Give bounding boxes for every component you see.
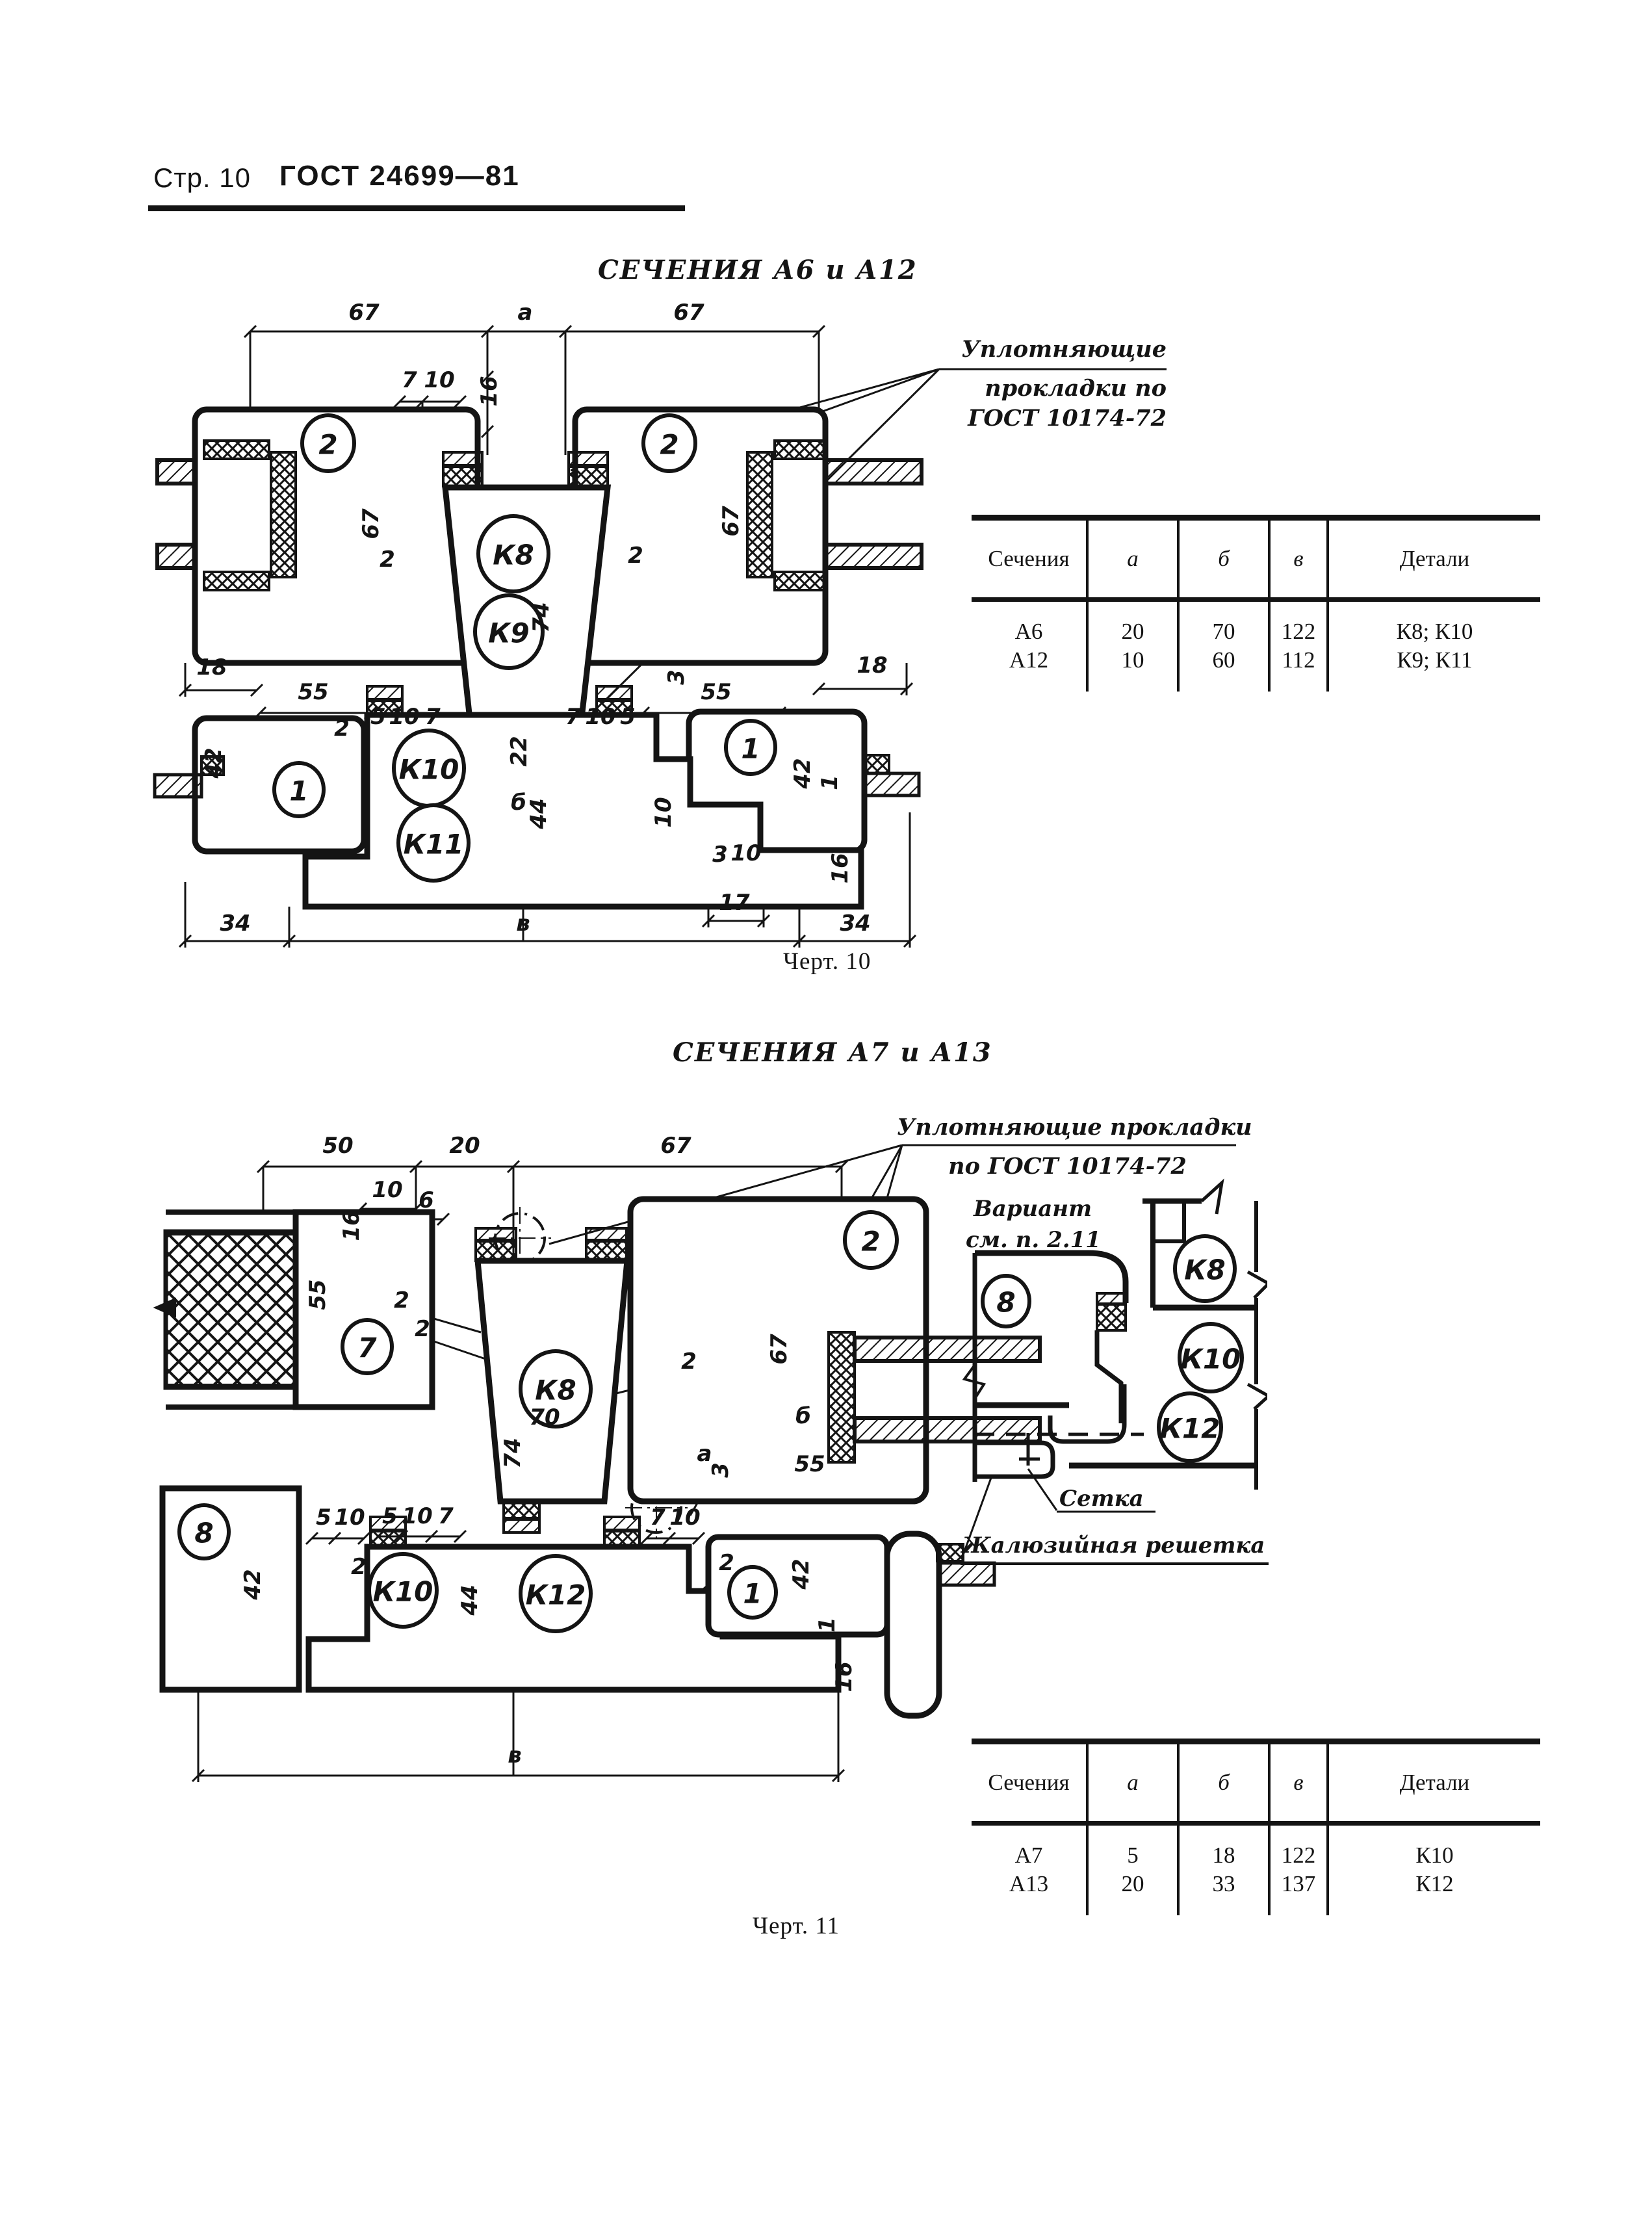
part-callout-label: К12: [1160, 1413, 1220, 1445]
dim-label: 44: [457, 1584, 483, 1616]
table-cell: А13: [1009, 1870, 1048, 1898]
dim-label: а: [697, 1441, 712, 1467]
gasket: [204, 441, 269, 459]
dim-label: 44: [526, 798, 552, 829]
part-callout-label: 1: [289, 775, 308, 807]
table1-header-b: б: [1180, 521, 1271, 597]
dim-label: 7: [425, 704, 441, 730]
table-cell: К9; К11: [1397, 646, 1472, 675]
table2-header-details: Детали: [1329, 1744, 1540, 1821]
dim-label: 2: [681, 1349, 697, 1375]
dim-label: 20: [449, 1133, 480, 1159]
table-cell: 122: [1282, 617, 1316, 646]
table1-header-row: Сечения а б в Детали: [972, 521, 1540, 597]
dim-label: 42: [240, 1569, 266, 1600]
dim-label: 2: [380, 547, 395, 573]
dim-label: 74: [500, 1438, 526, 1468]
glazing-stub: [155, 775, 201, 797]
dim-label: 18: [857, 653, 887, 679]
gasket: [504, 1503, 539, 1518]
table2-divider: [972, 1821, 1540, 1826]
table1-col-details: К8; К10 К9; К11: [1329, 602, 1540, 692]
table-cell: 20: [1122, 617, 1144, 646]
standard-number: ГОСТ 24699—81: [279, 160, 520, 192]
table2-body: А7 А13 5 20 18 33 122 137 К10 К12: [972, 1826, 1540, 1915]
part-callout-label: К9: [488, 617, 530, 649]
dim-label: 3: [712, 842, 728, 868]
dim-label: 2: [415, 1316, 430, 1342]
part-callout-label: 8: [996, 1287, 1015, 1319]
dim-label: в: [516, 911, 530, 937]
dim-label: 3: [664, 669, 690, 685]
table2-col-a: 5 20: [1089, 1826, 1180, 1915]
dim-label: 67: [358, 508, 384, 539]
dim-label: б: [795, 1403, 811, 1429]
table-cell: 20: [1122, 1870, 1144, 1898]
dim-label: 7: [402, 367, 417, 393]
table2-col-b: 18 33: [1180, 1826, 1271, 1915]
part-callout-label: К10: [373, 1576, 433, 1608]
table-cell: 137: [1282, 1870, 1316, 1898]
part-callout-label: К8: [493, 539, 534, 571]
table-cell: 5: [1127, 1841, 1139, 1870]
gasket: [204, 572, 269, 590]
page-number: Стр. 10: [153, 162, 251, 194]
table2-header-row: Сечения а б в Детали: [972, 1744, 1540, 1821]
dim-label: 10: [334, 1505, 365, 1531]
gasket: [569, 467, 608, 486]
dim-label: 2: [719, 1550, 734, 1576]
table-cell: 70: [1213, 617, 1235, 646]
dim-label: 67: [718, 506, 744, 537]
table2-header-a: а: [1089, 1744, 1180, 1821]
gasket: [271, 452, 296, 577]
part-callout-label: 1: [741, 733, 760, 765]
gasket: [829, 1332, 855, 1462]
dim-label: 55: [305, 1279, 331, 1310]
document-page: Стр. 10 ГОСТ 24699—81 СЕЧЕНИЯ А6 и А12 У…: [0, 0, 1652, 2224]
seal-strip: [367, 686, 402, 699]
dim-label: 2: [334, 716, 350, 742]
table-cell: 122: [1282, 1841, 1316, 1870]
dim-label: 7: [438, 1503, 454, 1529]
part-callout-label: 2: [318, 429, 337, 461]
table1-body: А6 А12 20 10 70 60 122 112 К8; К10 К9; К…: [972, 602, 1540, 692]
dim-label: 42: [790, 758, 816, 789]
dim-label: 16: [339, 1210, 365, 1241]
table2-header-b: б: [1180, 1744, 1271, 1821]
gasket: [586, 1241, 626, 1261]
table2-col-details: К10 К12: [1329, 1826, 1540, 1915]
seal-strip: [504, 1519, 539, 1532]
part-callout-label: 7: [357, 1332, 377, 1364]
dim-label: 1: [814, 1617, 840, 1633]
outer-stile: [887, 1534, 939, 1716]
dim-label: 42: [201, 747, 227, 779]
gasket: [476, 1241, 516, 1261]
dim-label: 34: [840, 911, 870, 937]
table1-header-details: Детали: [1329, 521, 1540, 597]
part-callout-label: К8: [1184, 1254, 1226, 1286]
dim-label: 42: [788, 1558, 814, 1590]
table1-header-a: а: [1089, 521, 1180, 597]
dim-label: 1: [817, 775, 843, 790]
dim-label: 74: [528, 602, 554, 632]
table1-col-sections: А6 А12: [972, 602, 1089, 692]
dim-label: 70: [529, 1404, 560, 1430]
wall-section: [166, 1232, 296, 1388]
table-cell: 10: [1122, 646, 1144, 675]
glazing-stub: [939, 1563, 994, 1585]
table1-col-v: 122 112: [1271, 602, 1329, 692]
figure2-drawing: 7281К8К10К128К8К10К12 502067101662255742…: [149, 1079, 1267, 1807]
figure2-wall: [155, 1212, 432, 1407]
table-cell: К12: [1415, 1870, 1453, 1898]
seal-strip: [604, 1517, 639, 1530]
dim-label: 10: [651, 797, 677, 827]
gasket: [1097, 1304, 1126, 1330]
dim-label: 67: [673, 300, 704, 326]
part-callout-label: 8: [194, 1518, 213, 1549]
table2-header-v: в: [1271, 1744, 1329, 1821]
glazing-stub: [864, 773, 919, 795]
dim-label: 2: [394, 1287, 409, 1313]
gasket: [937, 1544, 963, 1561]
dim-label: 5: [382, 1503, 398, 1529]
table-cell: 33: [1213, 1870, 1235, 1898]
dim-label: 6: [419, 1187, 434, 1213]
table-cell: К8; К10: [1397, 617, 1473, 646]
dim-label: в: [508, 1742, 522, 1768]
gasket: [370, 1531, 406, 1545]
dim-label: а: [518, 300, 533, 326]
table2-col-v: 122 137: [1271, 1826, 1329, 1915]
table2-col-sections: А7 А13: [972, 1826, 1089, 1915]
seal-strip: [586, 1228, 626, 1240]
figure1-table: Сечения а б в Детали А6 А12 20 10 70 60 …: [972, 515, 1540, 692]
part-callout-label: К12: [526, 1579, 586, 1611]
part-callout-label: К10: [1181, 1343, 1241, 1375]
gasket: [747, 452, 772, 577]
figure1-caption: Черт. 10: [783, 948, 871, 976]
dim-label: 16: [831, 1661, 857, 1692]
table-cell: А7: [1015, 1841, 1043, 1870]
dim-label: 10: [402, 1503, 432, 1529]
gasket: [604, 1531, 639, 1545]
detail-label-setka: Сетка: [1059, 1484, 1144, 1513]
dim-label: 10: [730, 840, 761, 866]
table-cell: А6: [1015, 617, 1043, 646]
part-callout-label: 2: [660, 429, 678, 461]
part-callout-label: 1: [743, 1578, 762, 1610]
part-callout-label: К11: [404, 829, 464, 860]
dim-label: 18: [196, 654, 227, 680]
seal-strip: [569, 452, 608, 465]
header-rule: [148, 205, 685, 211]
dim-label: 5: [316, 1505, 331, 1531]
seal-strip: [1097, 1293, 1126, 1304]
table-cell: 112: [1282, 646, 1315, 675]
dim-label: 16: [827, 853, 853, 883]
table-cell: 18: [1213, 1841, 1235, 1870]
table1-header-v: в: [1271, 521, 1329, 597]
gasket: [443, 467, 482, 486]
dim-label: 7: [565, 704, 581, 730]
dim-label: 5: [370, 704, 386, 730]
table1-col-a: 20 10: [1089, 602, 1180, 692]
glazing-bar: [855, 1418, 1040, 1442]
dim-label: 55: [794, 1451, 825, 1477]
seal-strip: [476, 1228, 516, 1240]
figure2-table: Сечения а б в Детали А7 А13 5 20 18 33 1…: [972, 1739, 1540, 1915]
dim-label: 67: [660, 1133, 691, 1159]
dim-label: 67: [766, 1334, 792, 1365]
dim-label: 7: [650, 1505, 665, 1531]
glazing-bar: [855, 1338, 1040, 1361]
detail-label-grille: Жалюзийная решетка: [961, 1531, 1269, 1565]
figure1-title: СЕЧЕНИЯ А6 и А12: [598, 255, 918, 285]
table1-header-sections: Сечения: [972, 521, 1089, 597]
dim-label: 34: [220, 911, 250, 937]
table-cell: А12: [1009, 646, 1048, 675]
seal-strip: [597, 686, 632, 699]
dim-label: 22: [506, 736, 532, 766]
dim-label: 2: [351, 1554, 367, 1580]
figure1-profiles: [155, 409, 922, 907]
variant-note-line2: см. п. 2.11: [966, 1226, 1101, 1254]
figure2-title: СЕЧЕНИЯ А7 и А13: [673, 1037, 992, 1068]
dim-label: б: [511, 790, 526, 816]
dim-label: 5: [620, 704, 636, 730]
dim-label: 55: [298, 679, 328, 705]
part-callout-label: К10: [399, 754, 459, 786]
dim-label: 17: [719, 890, 750, 916]
dim-label: 16: [476, 376, 502, 406]
table1-col-b: 70 60: [1180, 602, 1271, 692]
dim-label: 10: [389, 704, 419, 730]
dim-label: 67: [348, 300, 380, 326]
dim-label: 10: [372, 1177, 402, 1203]
table-cell: К10: [1415, 1841, 1453, 1870]
seal-strip: [443, 452, 482, 465]
gasket: [863, 755, 889, 773]
figure2-caption: Черт. 11: [753, 1912, 840, 1940]
variant-note-line1: Вариант: [974, 1195, 1092, 1223]
dim-label: 2: [628, 543, 643, 569]
dim-label: 55: [701, 679, 731, 705]
dim-label: 10: [585, 704, 615, 730]
part-callout-label: 2: [861, 1226, 880, 1258]
table-cell: 60: [1213, 646, 1235, 675]
part-callout-label: К8: [535, 1375, 576, 1406]
dim-label: 10: [669, 1505, 700, 1531]
dim-label: 50: [322, 1133, 353, 1159]
table2-header-sections: Сечения: [972, 1744, 1089, 1821]
dim-label: 10: [424, 367, 454, 393]
gasket: [775, 572, 824, 590]
table1-divider: [972, 597, 1540, 602]
gasket: [775, 441, 824, 459]
